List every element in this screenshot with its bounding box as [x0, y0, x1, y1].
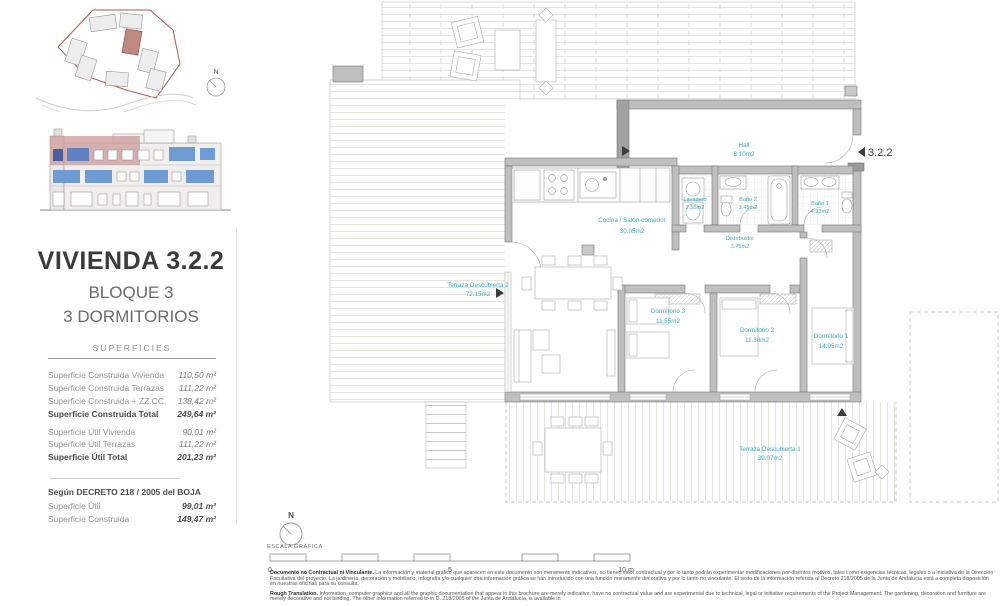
room-area: 11.38m2 — [745, 337, 770, 344]
page-title: VIVIENDA 3.2.2 — [0, 247, 262, 276]
title-block: VIVIENDA 3.2.2 BLOQUE 3 3 DORMITORIOS — [0, 247, 262, 327]
room-area: 72.15m2 — [466, 291, 491, 298]
room-area: 4.23m2 — [811, 209, 830, 215]
brochure-page: N — [0, 0, 1001, 606]
adjacent-dashed-area — [910, 312, 998, 502]
disclaimer: Documento no Contractual ni Vinculante. … — [270, 571, 996, 606]
divider — [50, 478, 180, 479]
room-label: Hall — [739, 142, 750, 149]
table-row: Superficie Útil99,01 m² — [48, 500, 216, 513]
surfaces-heading: SUPERFICIES — [48, 343, 216, 359]
room-label: Terraza Descubierta 2 — [447, 282, 509, 289]
table-row-total: Superficie Útil Total201,23 m² — [48, 451, 216, 464]
site-buildings — [65, 13, 166, 92]
room-label: Cocina / Salón-comedor — [598, 217, 666, 224]
room-label: Dormitorio 1 — [814, 333, 849, 340]
table-row: Superficie Construida Vivienda110,50 m² — [48, 369, 216, 382]
room-area: 14.95m2 — [819, 343, 844, 350]
room-label: Terraza Descubierta 1 — [739, 446, 801, 453]
terrace-steps — [426, 402, 466, 468]
north-label: N — [288, 511, 294, 520]
floor-plan: 3.2.2 Terraza Descubierta 2 72.15m2 Coci… — [320, 0, 1001, 512]
table-row: Superficie Útil Vivienda90,01 m² — [48, 425, 216, 438]
decreto-heading: Según DECRETO 218 / 2005 del BOJA — [48, 487, 216, 497]
table-row: Superficie Construida149,47 m² — [48, 513, 216, 526]
building-elevation — [38, 118, 233, 218]
table-row: Superficie Construida Terrazas111,22 m² — [48, 382, 216, 395]
table-row-total: Superficie Construida Total249,64 m² — [48, 407, 216, 420]
site-plan: N — [28, 2, 243, 112]
room-label: Baño 2 — [739, 197, 757, 203]
bedrooms-subtitle: 3 DORMITORIOS — [0, 307, 262, 327]
table-row: Superficie Construida + ZZ.CC.138,42 m² — [48, 395, 216, 408]
kitchen-counter — [512, 168, 670, 202]
disclaimer-es: Documento no Contractual ni Vinculante. … — [270, 571, 996, 588]
entrance-marker: 3.2.2 — [858, 147, 892, 159]
surfaces-table: SUPERFICIES Superficie Construida Vivien… — [48, 343, 216, 526]
unit-number-label: 3.2.2 — [868, 147, 892, 159]
site-north-label: N — [213, 69, 218, 76]
room-area: 3.75m2 — [731, 244, 750, 250]
divider — [236, 228, 237, 524]
site-highlighted-block — [122, 29, 142, 55]
room-label: Dormitorio 3 — [651, 308, 686, 315]
room-label: Distribuidor — [726, 236, 754, 242]
table-row: Superficie Útil Terrazas111,22 m² — [48, 438, 216, 451]
scale-caption: ESCALA GRÁFICA — [267, 544, 323, 550]
room-area: 2.55m2 — [686, 205, 705, 211]
site-north-icon: N — [207, 69, 225, 96]
disclaimer-en: Rough Translation. Information, computer… — [270, 592, 996, 603]
terrace-2-deck — [330, 80, 520, 402]
room-area: 11.55m2 — [656, 318, 681, 325]
room-label: Lavadero — [683, 197, 706, 203]
room-area: 39.07m2 — [758, 455, 783, 462]
room-label: Baño 1 — [811, 201, 829, 207]
room-area: 8.10m2 — [733, 151, 755, 158]
block-subtitle: BLOQUE 3 — [0, 283, 262, 303]
room-area: 30.05m2 — [620, 228, 645, 235]
room-label: Dormitorio 2 — [740, 327, 775, 334]
room-area: 3.45m2 — [739, 205, 758, 211]
